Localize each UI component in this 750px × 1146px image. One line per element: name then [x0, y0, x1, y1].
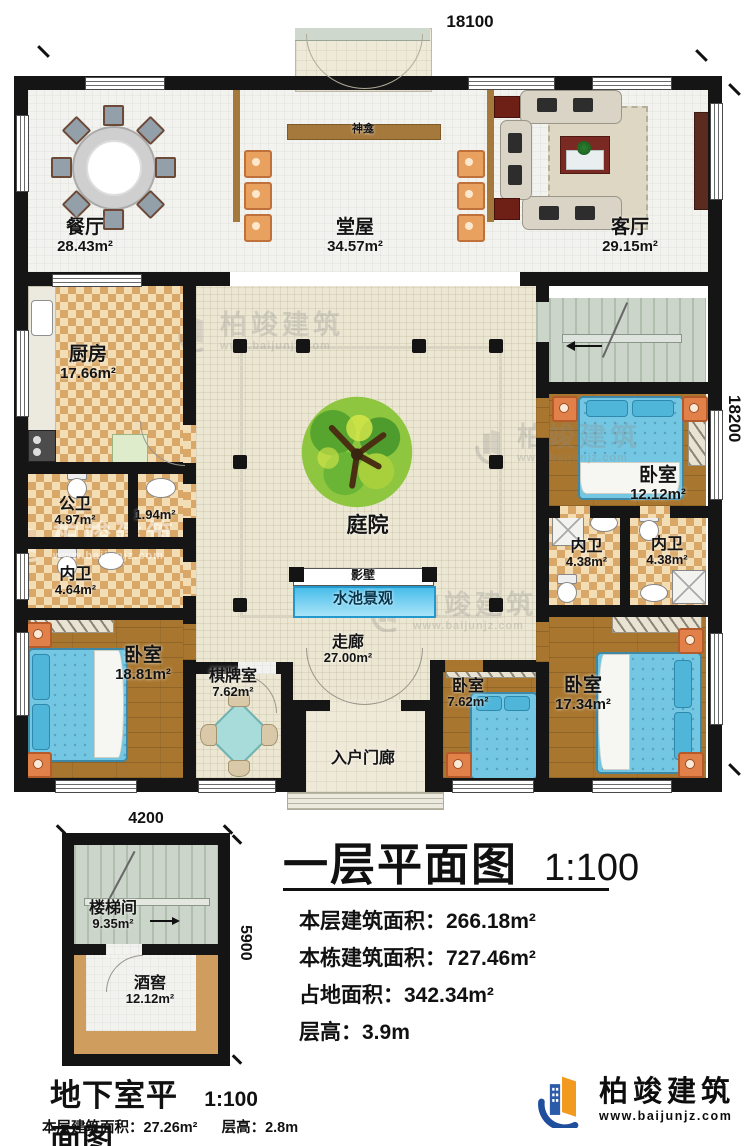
- nightstand: [678, 752, 704, 778]
- side-table: [494, 96, 520, 118]
- window: [16, 632, 29, 716]
- column: [489, 455, 503, 469]
- stair-direction-line: [574, 345, 602, 347]
- plan-title-text: 一层平面图: [283, 828, 518, 893]
- dining-chair: [103, 105, 124, 126]
- room-label-shrine: 神龛: [313, 124, 413, 136]
- hall-chair: [244, 214, 272, 242]
- room-label-bedroom-sw: 卧室18.81m²: [93, 646, 193, 683]
- stove: [28, 430, 56, 462]
- plan-title-scale: 1:100: [544, 847, 639, 890]
- nightstand: [446, 752, 472, 778]
- watermark: 柏竣建筑www.baijunjz.com: [175, 312, 344, 354]
- window: [55, 780, 137, 793]
- chess-chair: [200, 724, 217, 746]
- window: [16, 330, 29, 417]
- window: [710, 410, 723, 500]
- basement-door-gap: [106, 944, 142, 955]
- column: [412, 339, 426, 353]
- plan-title-underline: [283, 888, 609, 891]
- window: [52, 274, 142, 287]
- column: [489, 598, 503, 612]
- wall: [293, 700, 306, 792]
- plant: [577, 141, 591, 155]
- tv-cabinet: [694, 112, 709, 210]
- wall: [306, 700, 330, 711]
- door-gap: [640, 506, 670, 518]
- dimension-tick: [695, 49, 708, 62]
- entry-steps: [287, 792, 444, 810]
- wall: [128, 468, 138, 540]
- column: [233, 339, 247, 353]
- stove-burner: [33, 436, 41, 444]
- door-gap: [536, 398, 549, 438]
- company-website: www.baijunjz.com: [599, 1109, 735, 1123]
- dining-chair: [155, 157, 176, 178]
- nightstand: [678, 628, 704, 654]
- window: [710, 103, 723, 200]
- door-gap: [183, 484, 196, 518]
- room-label-wine-cellar: 酒窖12.12m²: [105, 975, 195, 1006]
- plan-stats: 本层建筑面积：266.18m² 本栋建筑面积：727.46m² 占地面积：342…: [299, 903, 536, 1051]
- column: [489, 339, 503, 353]
- room-label-hall: 堂屋34.57m²: [300, 218, 410, 255]
- shower: [672, 570, 706, 604]
- door-gap: [183, 562, 196, 596]
- screen-wall-post: [289, 567, 304, 582]
- pillow: [32, 654, 50, 700]
- room-label-courtyard: 庭院: [320, 515, 415, 538]
- room-label-closet: 1.94m²: [126, 508, 184, 522]
- plan-title: 一层平面图 1:100: [283, 828, 639, 893]
- wall: [183, 272, 196, 792]
- dining-chair: [51, 157, 72, 178]
- wall: [14, 537, 196, 549]
- hall-chair: [457, 150, 485, 178]
- room-label-public-bath: 公卫4.97m²: [30, 496, 120, 527]
- hall-screen: [233, 90, 240, 222]
- toilet: [66, 470, 86, 498]
- pillow: [586, 400, 628, 417]
- company-logo: 柏竣建筑 www.baijunjz.com: [534, 1072, 735, 1128]
- hall-screen: [487, 90, 494, 222]
- basement-stats: 本层建筑面积：27.26m² 层高：2.8m: [42, 1118, 298, 1138]
- room-label-chess: 棋牌室7.62m²: [183, 668, 283, 699]
- hall-chair: [457, 214, 485, 242]
- hall-chair: [244, 150, 272, 178]
- room-label-inner-bath-e2: 内卫4.38m²: [628, 536, 706, 567]
- room-label-inner-bath-e1: 内卫4.38m²: [549, 538, 624, 569]
- dimension-top: 18100: [410, 12, 530, 32]
- room-label-dining: 餐厅28.43m²: [30, 218, 140, 255]
- nightstand: [552, 396, 578, 422]
- window: [592, 780, 672, 793]
- dimension-tick: [232, 834, 243, 845]
- dimension-right: 18200: [724, 395, 744, 442]
- room-label-pool: 水池景观: [313, 591, 413, 607]
- basement-dimension-right: 5900: [236, 925, 254, 961]
- dimension-tick: [232, 1054, 243, 1065]
- room-label-bedroom-e: 卧室12.12m²: [608, 466, 708, 503]
- dimension-tick: [728, 83, 741, 96]
- wall: [520, 272, 722, 286]
- chess-chair: [261, 724, 278, 746]
- window: [710, 633, 723, 725]
- window: [468, 77, 555, 90]
- wall: [14, 462, 196, 474]
- room-label-kitchen: 厨房17.66m²: [33, 345, 143, 382]
- wall: [536, 382, 722, 394]
- window: [16, 115, 29, 192]
- room-label-living: 客厅29.15m²: [575, 218, 685, 255]
- sink: [640, 584, 668, 602]
- wall: [536, 272, 549, 792]
- entry-porch-floor: [306, 700, 425, 792]
- window: [198, 780, 276, 793]
- wall: [425, 700, 438, 792]
- room-label-bedroom-se: 卧室17.34m²: [533, 676, 633, 713]
- hall-chair: [457, 182, 485, 210]
- window: [592, 77, 672, 90]
- column: [233, 455, 247, 469]
- room-label-corridor: 走廊27.00m²: [298, 634, 398, 665]
- sofa: [520, 90, 622, 124]
- nightstand: [26, 752, 52, 778]
- stove-burner: [33, 448, 41, 456]
- room-label-stair-hall: 楼梯间9.35m²: [68, 900, 158, 931]
- door-gap: [536, 302, 549, 342]
- dimension-tick: [728, 763, 741, 776]
- sofa: [500, 120, 532, 200]
- window: [85, 77, 165, 90]
- company-name: 柏竣建筑: [599, 1077, 735, 1109]
- side-table: [494, 198, 520, 220]
- room-label-entry-porch: 入户门廊: [308, 750, 418, 767]
- pillow: [32, 704, 50, 750]
- dimension-tick: [37, 45, 50, 58]
- nightstand: [682, 396, 708, 422]
- stair-landing-rail: [562, 334, 682, 343]
- basement-wall: [74, 944, 218, 955]
- room-label-screen-wall: 影壁: [313, 569, 413, 582]
- dining-table-top: [86, 140, 142, 196]
- wall: [14, 608, 196, 620]
- window: [452, 780, 534, 793]
- room-label-inner-bath-w: 内卫4.64m²: [28, 566, 123, 597]
- pillow: [632, 400, 674, 417]
- hall-chair: [244, 182, 272, 210]
- dimension-tick: [56, 824, 67, 835]
- kitchen-sink: [31, 300, 53, 336]
- toilet: [556, 574, 576, 602]
- chess-chair: [228, 760, 250, 777]
- column: [233, 598, 247, 612]
- pillow: [674, 660, 692, 708]
- basement-dimension-top: 4200: [101, 810, 191, 828]
- room-label-bedroom-s: 卧室7.62m²: [418, 678, 518, 709]
- door-gap: [560, 506, 590, 518]
- nightstand: [26, 622, 52, 648]
- screen-wall-post: [422, 567, 437, 582]
- door-gap: [445, 660, 483, 672]
- courtyard-tree: [297, 392, 417, 512]
- floor-plan-canvas: 影壁 水池景观 神龛: [0, 0, 750, 1146]
- sink: [146, 478, 176, 498]
- company-logo-icon: [534, 1072, 590, 1128]
- column: [296, 339, 310, 353]
- door-gap: [536, 622, 549, 662]
